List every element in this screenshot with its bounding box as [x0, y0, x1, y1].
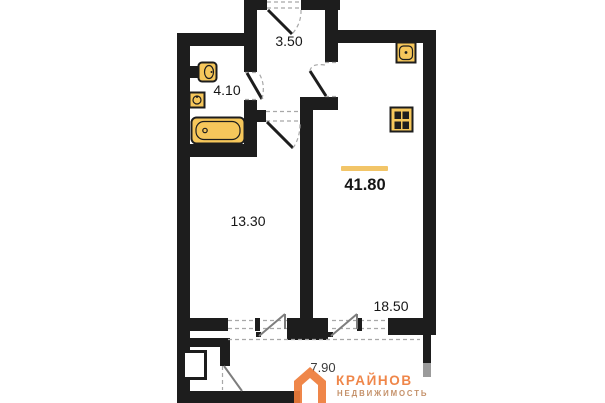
- bathroom-area-label: 4.10: [202, 83, 252, 97]
- kitchen-sink-icon: [397, 43, 416, 63]
- plan-graphics: [0, 0, 605, 403]
- hallway-area-label: 3.50: [264, 34, 314, 48]
- entrance-door: [267, 2, 301, 34]
- kitchen-area-label: 18.50: [366, 299, 416, 313]
- total-area-underline: [341, 166, 388, 171]
- logo-brand-text: КРАЙНОВ: [336, 374, 413, 388]
- closet-door: [223, 366, 243, 391]
- kitchen-door: [310, 63, 338, 97]
- floor-plan: 3.50 4.10 13.30 41.80 18.50 7.90 КРАЙНОВ…: [0, 0, 605, 403]
- apartment-plan: 3.50 4.10 13.30 41.80 18.50 7.90 КРАЙНОВ…: [0, 0, 605, 403]
- total-area-label: 41.80: [337, 177, 393, 194]
- living-room-area-label: 13.30: [223, 214, 273, 228]
- living-room-door: [266, 112, 300, 149]
- stove-icon: [391, 108, 413, 132]
- bathtub-icon: [192, 118, 245, 144]
- balcony-door-window-right: [328, 314, 388, 337]
- balcony-door-window-left: [228, 314, 287, 337]
- toilet-icon: [190, 63, 217, 82]
- watermark-logo: КРАЙНОВ НЕДВИЖИМОСТЬ: [292, 366, 442, 403]
- logo-house-icon: [292, 366, 328, 403]
- logo-tagline-text: НЕДВИЖИМОСТЬ: [337, 390, 428, 398]
